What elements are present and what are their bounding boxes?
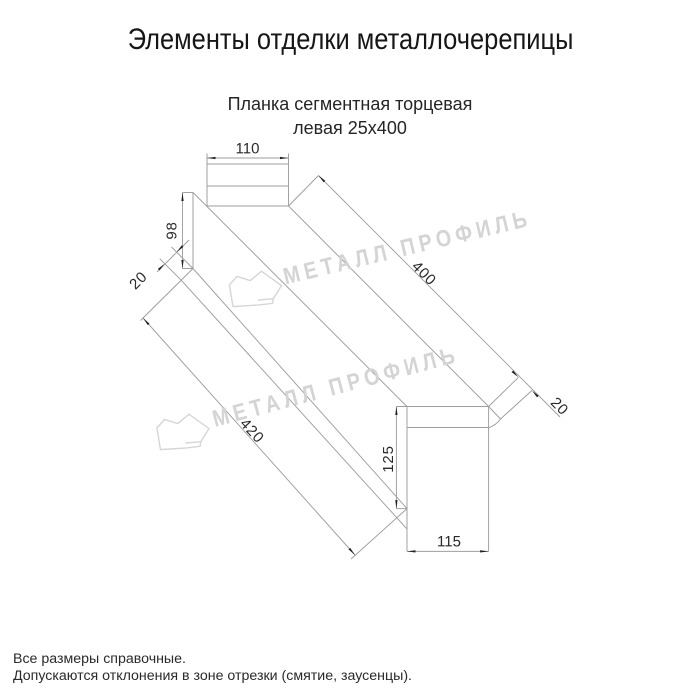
svg-text:МЕТАЛЛ ПРОФИЛЬ: МЕТАЛЛ ПРОФИЛЬ [209, 340, 462, 432]
svg-text:20: 20 [126, 268, 151, 293]
svg-text:98: 98 [163, 221, 180, 239]
svg-text:125: 125 [380, 445, 397, 472]
svg-text:110: 110 [236, 140, 260, 157]
svg-text:115: 115 [437, 533, 461, 550]
svg-text:МЕТАЛЛ ПРОФИЛЬ: МЕТАЛЛ ПРОФИЛЬ [280, 204, 533, 290]
svg-text:20: 20 [547, 394, 572, 419]
svg-text:400: 400 [408, 258, 439, 289]
